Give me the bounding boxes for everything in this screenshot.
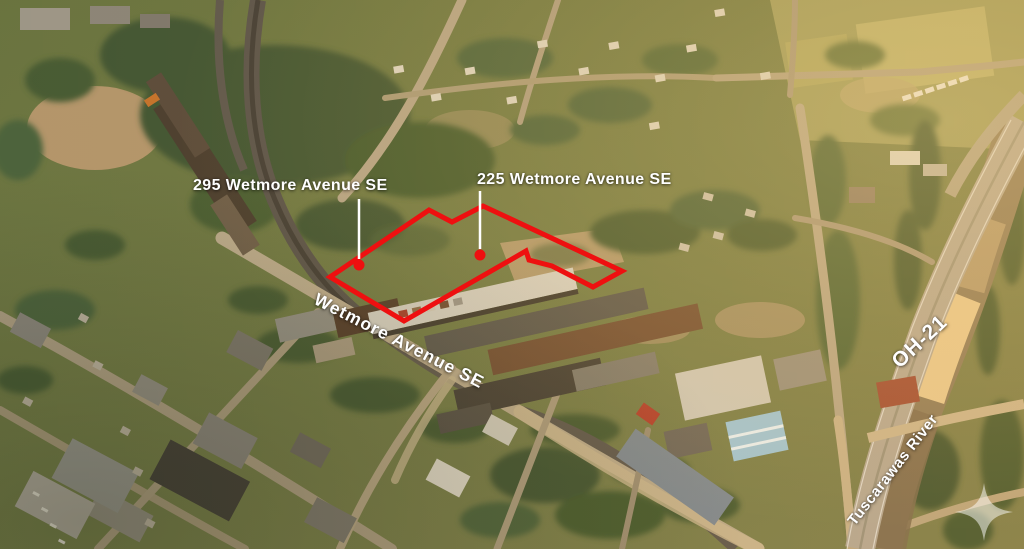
aerial-property-map: 295 Wetmore Avenue SE 225 Wetmore Avenue… bbox=[0, 0, 1024, 549]
watermark-star-icon bbox=[955, 483, 1013, 541]
marker-dot-225 bbox=[475, 250, 486, 261]
property-label-225: 225 Wetmore Avenue SE bbox=[477, 171, 672, 189]
annotation-overlay bbox=[0, 0, 1024, 549]
parcel-boundary-outline bbox=[330, 206, 622, 321]
property-label-295: 295 Wetmore Avenue SE bbox=[193, 177, 388, 195]
marker-dot-295 bbox=[354, 260, 365, 271]
